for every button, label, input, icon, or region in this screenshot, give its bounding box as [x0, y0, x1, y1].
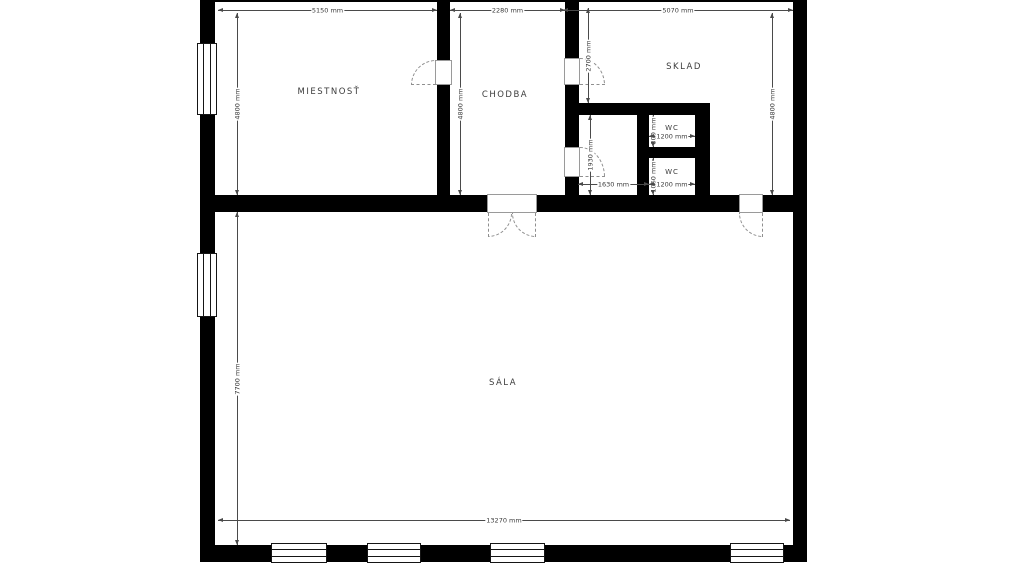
floor-plan-canvas: 5150 mm 2280 mm 5070 mm 4800 mm 4800 mm … — [0, 0, 1011, 570]
dim-line-sala-height: 7700 mm — [237, 212, 238, 545]
room-label-sklad: SKLAD — [666, 62, 702, 72]
dim-line-chodba-width: 2280 mm — [450, 10, 565, 11]
room-label-miestnost: MIESTNOSŤ — [298, 87, 361, 97]
window-bottom-2 — [367, 543, 421, 563]
dim-label-wc-bottom-height: 1060 mm — [650, 160, 657, 193]
dim-label-sala-height: 7700 mm — [234, 362, 241, 395]
dim-line-chodba-height: 4800 mm — [460, 13, 461, 195]
door-swing-miestnost — [411, 60, 436, 85]
dim-label-building-width: 13270 mm — [485, 517, 522, 524]
dim-label-wc-bottom-width: 1200 mm — [655, 181, 688, 188]
dim-line-hall-width: 1630 mm — [578, 184, 649, 185]
wall-wc-middle — [637, 147, 710, 158]
door-swing-sala-right — [512, 213, 536, 237]
dim-line-wc-bottom-width: 1200 mm — [649, 184, 695, 185]
room-label-chodba: CHODBA — [482, 90, 528, 100]
door-opening-hall — [564, 147, 580, 177]
dim-line-sklad-height: 4800 mm — [772, 13, 773, 195]
dim-label-sklad-width: 5070 mm — [661, 7, 694, 14]
door-opening-sala-side — [739, 194, 763, 213]
dim-line-sklad-width: 5070 mm — [563, 10, 793, 11]
dim-line-miestnost-width: 5150 mm — [218, 10, 437, 11]
dim-label-chodba-width: 2280 mm — [491, 7, 524, 14]
door-swing-sala-left — [488, 213, 512, 237]
room-label-sala: SÁLA — [489, 378, 517, 388]
dim-label-sklad-height: 4800 mm — [769, 87, 776, 120]
window-left-upper — [197, 43, 217, 115]
dim-line-wc-top-height: 800 mm — [653, 115, 654, 147]
dim-label-miestnost-width: 5150 mm — [311, 7, 344, 14]
dim-line-corridor-height: 2700 mm — [588, 8, 589, 103]
dim-line-building-width: 13270 mm — [218, 520, 790, 521]
dim-line-hall-height: 1930 mm — [590, 115, 591, 195]
wall-right — [793, 0, 807, 562]
wall-miestnost-chodba — [437, 0, 450, 195]
dim-line-miestnost-height: 4800 mm — [237, 13, 238, 195]
room-label-wc-top: WC — [665, 124, 679, 132]
window-bottom-3 — [490, 543, 545, 563]
door-opening-sala-double — [487, 194, 537, 213]
dim-line-wc-bottom-height: 1060 mm — [653, 158, 654, 195]
dim-line-wc-top-width: 1200 mm — [649, 136, 695, 137]
dim-label-chodba-height: 4800 mm — [457, 87, 464, 120]
dim-label-wc-top-width: 1200 mm — [655, 133, 688, 140]
window-left-lower — [197, 253, 217, 317]
door-opening-miestnost — [435, 60, 452, 85]
window-bottom-4 — [730, 543, 784, 563]
wall-top-edge — [200, 0, 807, 2]
dim-label-corridor-height: 2700 mm — [585, 39, 592, 72]
room-label-wc-bottom: WC — [665, 168, 679, 176]
door-opening-corridor — [564, 58, 580, 85]
dim-label-miestnost-height: 4800 mm — [234, 87, 241, 120]
dim-label-hall-height: 1930 mm — [587, 138, 594, 171]
window-bottom-1 — [271, 543, 327, 563]
door-swing-sala-side — [739, 213, 763, 237]
dim-label-hall-width: 1630 mm — [597, 181, 630, 188]
